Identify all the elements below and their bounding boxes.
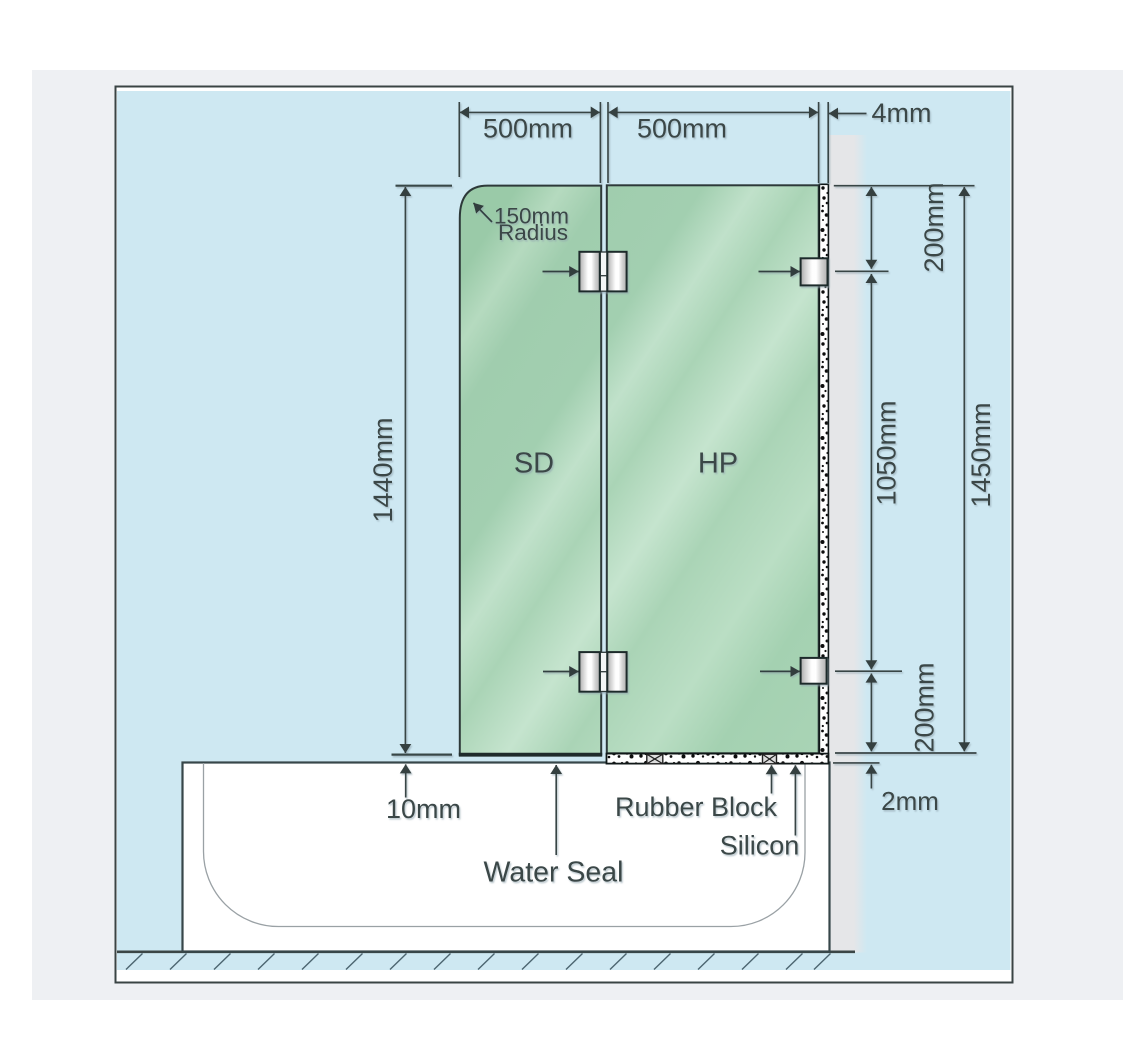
svg-text:1440mm: 1440mm	[368, 417, 398, 522]
svg-text:1050mm: 1050mm	[872, 400, 902, 505]
svg-text:Water Seal: Water Seal	[484, 857, 624, 889]
svg-text:4mm: 4mm	[872, 98, 932, 128]
svg-text:1450mm: 1450mm	[966, 402, 996, 507]
svg-text:200mm: 200mm	[910, 662, 940, 752]
svg-text:200mm: 200mm	[919, 182, 949, 272]
svg-text:Silicon: Silicon	[720, 831, 800, 861]
svg-text:2mm: 2mm	[881, 786, 939, 816]
svg-text:Rubber Block: Rubber Block	[615, 792, 778, 822]
svg-text:500mm: 500mm	[637, 114, 727, 144]
svg-text:Radius: Radius	[498, 220, 568, 245]
svg-text:HP: HP	[698, 448, 738, 480]
svg-text:SD: SD	[514, 448, 554, 480]
svg-text:500mm: 500mm	[483, 114, 573, 144]
svg-text:10mm: 10mm	[386, 794, 461, 824]
